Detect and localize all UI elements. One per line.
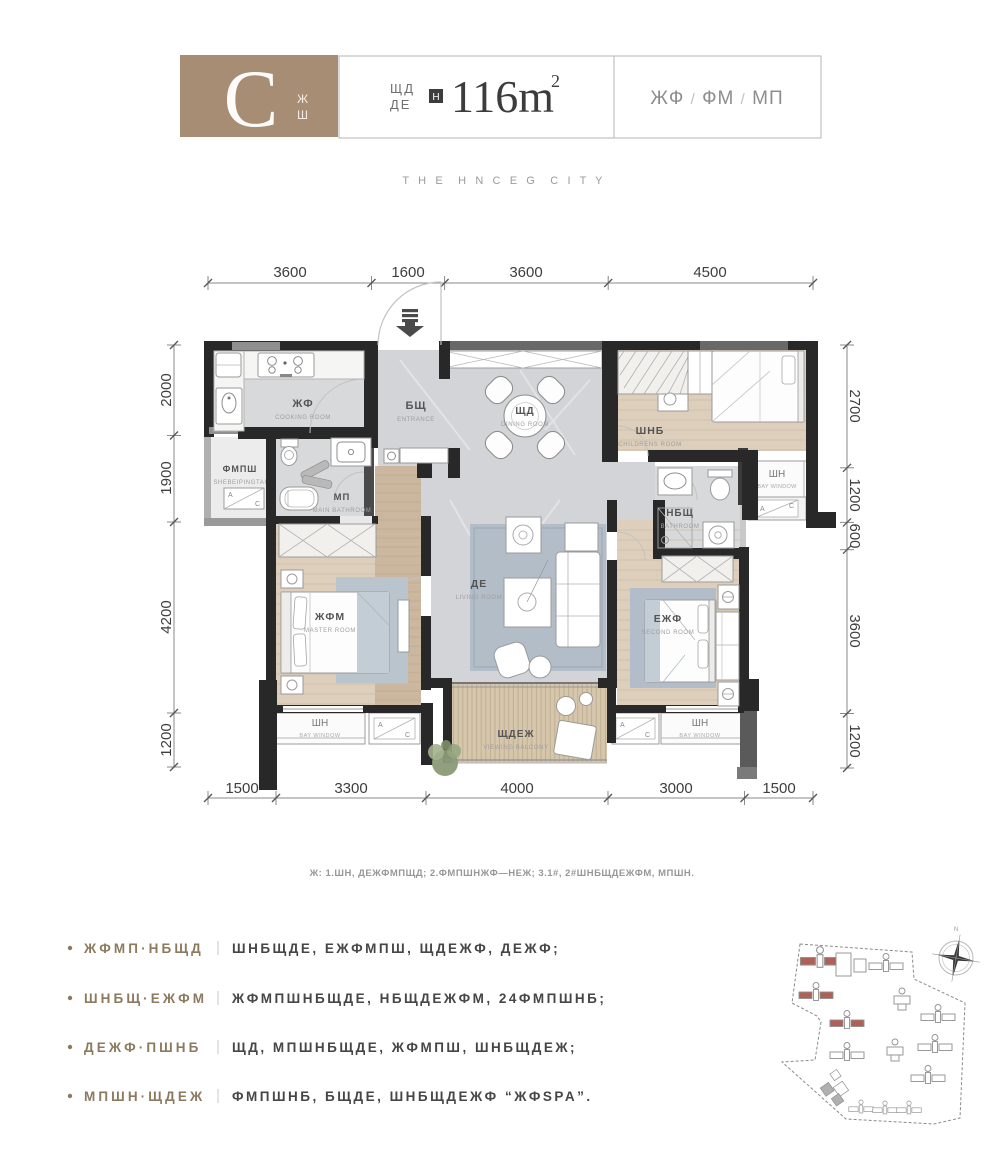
svg-text:N: N — [954, 927, 958, 933]
svg-text:CHILDRENS ROOM: CHILDRENS ROOM — [618, 442, 681, 448]
svg-text:3600: 3600 — [846, 614, 863, 647]
svg-text:3300: 3300 — [334, 780, 367, 797]
svg-text:1200: 1200 — [158, 723, 175, 756]
svg-text:COOKING ROOM: COOKING ROOM — [275, 415, 331, 421]
svg-text:SECOND ROOM: SECOND ROOM — [642, 630, 695, 636]
svg-text:МПШН·ЩДЕЖ: МПШН·ЩДЕЖ — [84, 1089, 205, 1104]
svg-text:A: A — [378, 722, 383, 729]
svg-text:ДЕЖФ·ПШНБ: ДЕЖФ·ПШНБ — [84, 1040, 201, 1055]
svg-text:C: C — [224, 53, 279, 144]
svg-text:ШНБЩДЕ, ЕЖФМПШ, ЩДЕЖФ, ДЕЖФ;: ШНБЩДЕ, ЕЖФМПШ, ЩДЕЖФ, ДЕЖФ; — [232, 941, 560, 956]
svg-text:1500: 1500 — [762, 780, 795, 797]
svg-text:T H E H N C E G C I T Y: T H E H N C E G C I T Y — [402, 175, 605, 187]
svg-text:1500: 1500 — [225, 780, 258, 797]
svg-text:MASTER ROOM: MASTER ROOM — [304, 628, 356, 634]
svg-text:3600: 3600 — [273, 264, 306, 281]
svg-text:ЖФМПШНБЩДЕ, НБЩДЕЖФМ, 24ФМПШНБ: ЖФМПШНБЩДЕ, НБЩДЕЖФМ, 24ФМПШНБ; — [231, 991, 606, 1006]
svg-text:Ж: 1.ШН, ДЕЖФМПЩД; 2.ФМПШНЖФ—Н: Ж: 1.ШН, ДЕЖФМПЩД; 2.ФМПШНЖФ—НЕЖ; 3.1#, … — [309, 868, 695, 879]
svg-text:ЩДЕЖ: ЩДЕЖ — [497, 729, 534, 740]
svg-text:ENTRANCE: ENTRANCE — [397, 417, 435, 423]
svg-text:ДЕ: ДЕ — [390, 97, 411, 112]
svg-text:ШНБЩ·ЕЖФМ: ШНБЩ·ЕЖФМ — [84, 991, 207, 1006]
svg-text:4200: 4200 — [158, 600, 175, 633]
svg-text:1200: 1200 — [846, 478, 863, 511]
svg-text:1900: 1900 — [158, 461, 175, 494]
svg-text:ШН: ШН — [692, 718, 708, 729]
svg-text:1600: 1600 — [391, 264, 424, 281]
svg-text:ДЕ: ДЕ — [471, 578, 487, 590]
svg-text:4500: 4500 — [693, 264, 726, 281]
svg-text:C: C — [645, 732, 650, 739]
svg-text:Ш: Ш — [297, 108, 308, 122]
svg-text:2000: 2000 — [158, 373, 175, 406]
svg-text:116m: 116m — [451, 71, 554, 122]
svg-text:Ж: Ж — [297, 92, 309, 106]
svg-text:ЖФ: ЖФ — [291, 398, 313, 410]
svg-text:Н: Н — [432, 92, 439, 103]
svg-text:ШН: ШН — [312, 718, 328, 729]
svg-text:4000: 4000 — [500, 780, 533, 797]
svg-text:ФМПШНБ, БЩДЕ, ШНБЩДЕЖФ “ЖФSPA”: ФМПШНБ, БЩДЕ, ШНБЩДЕЖФ “ЖФSPA”. — [232, 1089, 593, 1104]
svg-text:DINING ROOM: DINING ROOM — [501, 422, 549, 428]
svg-text:ЖФМП·НБЩД: ЖФМП·НБЩД — [83, 941, 204, 956]
svg-text:600: 600 — [846, 523, 863, 548]
svg-text:ЖФ / ФМ / МП: ЖФ / ФМ / МП — [650, 88, 783, 109]
svg-text:3000: 3000 — [659, 780, 692, 797]
svg-text:БЩ: БЩ — [405, 400, 426, 412]
svg-text:C: C — [255, 501, 260, 508]
svg-text:ШН: ШН — [769, 469, 785, 480]
svg-text:A: A — [228, 492, 233, 499]
svg-text:C: C — [789, 503, 794, 510]
svg-text:SHEBEIPINGTAI: SHEBEIPINGTAI — [213, 480, 266, 486]
svg-text:MAIN BATHROOM: MAIN BATHROOM — [313, 508, 372, 514]
svg-text:ШНБ: ШНБ — [636, 425, 665, 437]
svg-text:BAY WINDOW: BAY WINDOW — [679, 733, 720, 739]
svg-text:1200: 1200 — [846, 724, 863, 757]
svg-text:ЩД, МПШНБЩДЕ, ЖФМПШ, ШНБЩДЕЖ;: ЩД, МПШНБЩДЕ, ЖФМПШ, ШНБЩДЕЖ; — [232, 1040, 577, 1055]
svg-text:LIVING ROOM: LIVING ROOM — [456, 595, 503, 601]
svg-text:BATHROOM: BATHROOM — [660, 524, 699, 530]
svg-text:ФМПШ: ФМПШ — [223, 464, 258, 474]
svg-text:2: 2 — [551, 71, 560, 91]
svg-text:2700: 2700 — [846, 389, 863, 422]
svg-text:BAY WINDOW: BAY WINDOW — [299, 733, 340, 739]
svg-text:A: A — [620, 722, 625, 729]
svg-text:ЕЖФ: ЕЖФ — [654, 613, 682, 625]
svg-text:ЖФМ: ЖФМ — [314, 611, 345, 623]
svg-text:НБЩ: НБЩ — [666, 508, 694, 519]
svg-text:VIEWING BALCONY: VIEWING BALCONY — [483, 745, 548, 751]
svg-text:A: A — [760, 506, 765, 513]
svg-text:C: C — [405, 732, 410, 739]
svg-text:ЩД: ЩД — [515, 406, 534, 417]
svg-text:3600: 3600 — [509, 264, 542, 281]
svg-text:BAY WINDOW: BAY WINDOW — [757, 484, 797, 490]
svg-text:ЩД: ЩД — [390, 81, 415, 96]
svg-text:МП: МП — [334, 492, 351, 503]
